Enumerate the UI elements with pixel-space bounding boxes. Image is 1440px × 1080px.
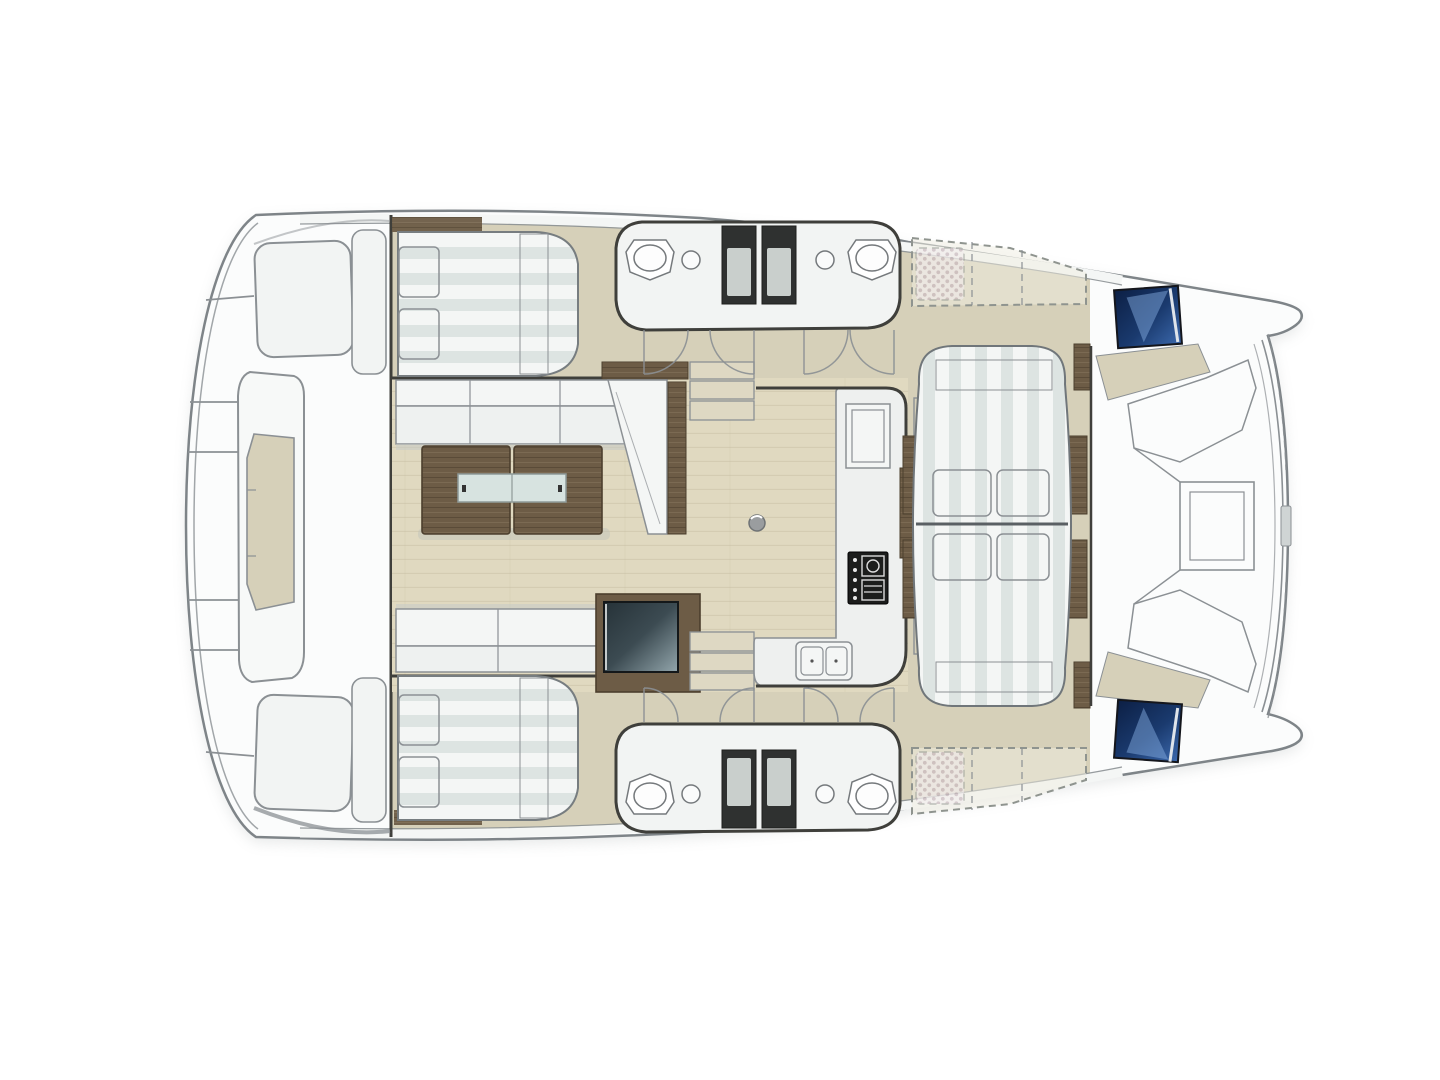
starboard-sink-right [816, 785, 834, 803]
sofa-side-panel [668, 382, 686, 534]
toilet-bowl [856, 783, 888, 809]
starboard-forward-berth [912, 748, 1086, 814]
port-side-step [352, 230, 386, 374]
starboard-aft-cabin [398, 676, 578, 820]
berth-pillow-dashed [916, 248, 964, 300]
table-handle-right [558, 485, 562, 492]
port-aft-cabin [398, 232, 578, 376]
coffee-table [418, 446, 610, 540]
starboard-toilet-left [626, 774, 674, 814]
port-shower-left-tray [727, 248, 751, 296]
step [690, 362, 754, 379]
stove-knob [853, 578, 857, 582]
step [690, 401, 754, 420]
sink-frame [796, 642, 852, 680]
step [690, 632, 754, 651]
toilet-bowl [634, 783, 666, 809]
port-toilet-right [848, 240, 896, 280]
step [690, 673, 754, 690]
starboard-toilet-right [848, 774, 896, 814]
bow-fitting [1281, 506, 1291, 546]
starboard-shower-left-tray [727, 758, 751, 806]
galley-sink [796, 642, 852, 680]
companionway-steps-port [690, 362, 754, 420]
port-forward-berth [912, 238, 1086, 306]
starboard-heads [616, 724, 900, 832]
stove-knob [853, 596, 857, 600]
floorplan-svg [0, 0, 1440, 1080]
stove [848, 552, 888, 604]
cockpit-sunbed [903, 344, 1090, 708]
sunbed-corner-bar-top [1074, 344, 1090, 390]
stern-console [238, 372, 304, 682]
stove-knob [853, 568, 857, 572]
starboard-shower-right-tray [767, 758, 791, 806]
step [690, 381, 754, 399]
port-bed [398, 232, 578, 376]
media-cabinet [596, 594, 700, 692]
sunbed-mattress [913, 346, 1071, 706]
berth-pillow-dashed [916, 752, 964, 804]
stove-knob [853, 588, 857, 592]
port-cabin-trim [392, 217, 482, 232]
port-sink-left [682, 251, 700, 269]
starboard-bow-hatch [1114, 700, 1182, 762]
catamaran-floorplan-page [0, 0, 1440, 1080]
sunbed-corner-bar-bottom [1074, 662, 1090, 708]
toilet-bowl [634, 245, 666, 271]
starboard-sink-left [682, 785, 700, 803]
step [690, 653, 754, 671]
starboard-transom-seat [254, 694, 354, 811]
port-transom-seat [254, 240, 354, 357]
starboard-side-step [352, 678, 386, 822]
table-handle-left [462, 485, 466, 492]
port-toilet-left [626, 240, 674, 280]
sink-drain [810, 659, 813, 662]
toilet-bowl [856, 245, 888, 271]
media-screen [604, 602, 678, 672]
port-sink-right [816, 251, 834, 269]
console-hatch [247, 434, 294, 610]
starboard-bed [398, 676, 578, 820]
salon-top-trim [602, 362, 688, 379]
sink-drain [834, 659, 837, 662]
port-bow-hatch [1114, 286, 1182, 348]
stove-knob [853, 558, 857, 562]
port-shower-right-tray [767, 248, 791, 296]
salon-bench [396, 604, 600, 672]
port-heads [616, 222, 900, 330]
companionway-steps-starboard [690, 632, 754, 690]
